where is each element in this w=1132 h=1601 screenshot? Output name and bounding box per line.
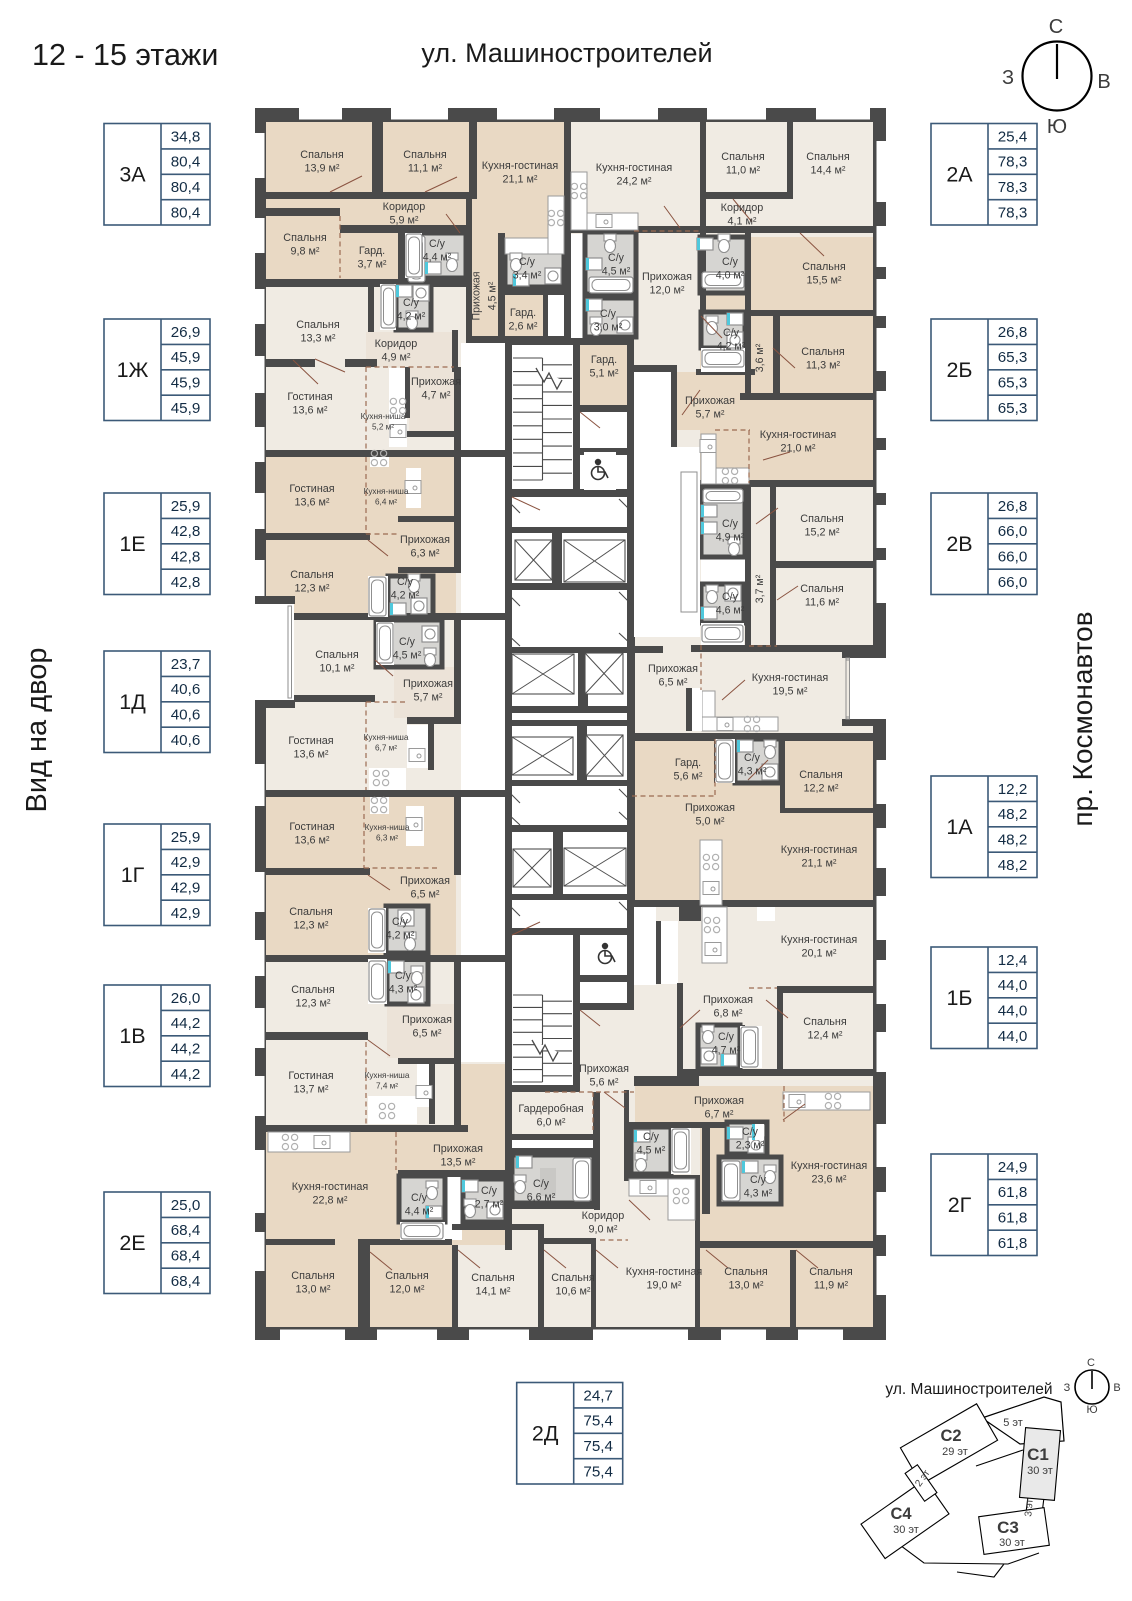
svg-text:1Е: 1Е: [119, 532, 145, 556]
svg-text:42,9: 42,9: [171, 854, 201, 871]
svg-text:66,0: 66,0: [998, 549, 1028, 566]
svg-text:4,3 м²: 4,3 м²: [744, 1187, 773, 1199]
svg-text:Коридор: Коридор: [383, 201, 426, 213]
svg-text:15,5 м²: 15,5 м²: [806, 275, 841, 287]
svg-text:Кухня-ниша: Кухня-ниша: [364, 487, 409, 496]
svg-text:4,7 м²: 4,7 м²: [712, 1044, 741, 1056]
svg-text:Гард.: Гард.: [675, 757, 701, 769]
svg-text:Ю: Ю: [1047, 116, 1067, 138]
svg-text:С/у: С/у: [392, 916, 409, 928]
svg-text:26,8: 26,8: [998, 324, 1028, 341]
svg-text:6,4 м²: 6,4 м²: [375, 497, 397, 506]
svg-text:30 эт: 30 эт: [1027, 1465, 1053, 1477]
svg-text:68,4: 68,4: [171, 1248, 201, 1265]
svg-text:42,9: 42,9: [171, 880, 201, 897]
svg-text:26,8: 26,8: [998, 498, 1028, 515]
svg-text:34,8: 34,8: [171, 128, 201, 145]
svg-text:С/у: С/у: [403, 297, 420, 309]
svg-text:2,6 м²: 2,6 м²: [508, 321, 537, 333]
svg-text:С/у: С/у: [643, 1131, 660, 1143]
svg-text:Спальня: Спальня: [315, 649, 359, 661]
svg-text:Кухня-ниша: Кухня-ниша: [361, 412, 406, 421]
svg-text:13,6 м²: 13,6 м²: [292, 405, 327, 417]
svg-text:4,4 м²: 4,4 м²: [423, 251, 452, 263]
svg-text:Спальня: Спальня: [803, 1016, 847, 1028]
svg-text:30 эт: 30 эт: [893, 1524, 919, 1536]
svg-text:3,6 м²: 3,6 м²: [754, 343, 766, 372]
svg-text:21,1 м²: 21,1 м²: [801, 858, 836, 870]
svg-text:Гостиная: Гостиная: [288, 1070, 333, 1082]
svg-text:1А: 1А: [946, 815, 973, 839]
svg-text:75,4: 75,4: [583, 1413, 613, 1430]
svg-text:Спальня: Спальня: [471, 1272, 515, 1284]
svg-text:Гостиная: Гостиная: [288, 735, 333, 747]
svg-text:2Б: 2Б: [946, 358, 972, 382]
svg-text:19,0 м²: 19,0 м²: [646, 1280, 681, 1292]
svg-text:14,4 м²: 14,4 м²: [810, 165, 845, 177]
svg-text:13,3 м²: 13,3 м²: [300, 333, 335, 345]
svg-text:5,7 м²: 5,7 м²: [413, 692, 442, 704]
svg-text:С/у: С/у: [519, 256, 536, 268]
svg-text:12,2 м²: 12,2 м²: [803, 783, 838, 795]
svg-text:30 эт: 30 эт: [999, 1537, 1025, 1549]
svg-text:65,3: 65,3: [998, 375, 1028, 392]
svg-text:Гард.: Гард.: [591, 354, 617, 366]
svg-text:Прихожая: Прихожая: [685, 802, 735, 814]
svg-text:С/у: С/у: [608, 252, 625, 264]
svg-text:Прихожая: Прихожая: [470, 271, 482, 320]
svg-text:12,3 м²: 12,3 м²: [295, 998, 330, 1010]
svg-text:15,2 м²: 15,2 м²: [804, 527, 839, 539]
svg-text:Спальня: Спальня: [724, 1266, 768, 1278]
svg-text:6,5 м²: 6,5 м²: [410, 889, 439, 901]
svg-text:75,4: 75,4: [583, 1464, 613, 1481]
svg-text:10,1 м²: 10,1 м²: [319, 663, 354, 675]
svg-text:25,9: 25,9: [171, 498, 201, 515]
svg-text:5,7 м²: 5,7 м²: [695, 409, 724, 421]
svg-text:6,8 м²: 6,8 м²: [713, 1008, 742, 1020]
svg-text:11,1 м²: 11,1 м²: [408, 163, 443, 175]
svg-text:2Е: 2Е: [119, 1231, 145, 1255]
svg-text:6,5 м²: 6,5 м²: [658, 677, 687, 689]
svg-text:5,1 м²: 5,1 м²: [589, 368, 618, 380]
svg-text:12,3 м²: 12,3 м²: [293, 920, 328, 932]
svg-text:4,2 м²: 4,2 м²: [391, 589, 420, 601]
svg-text:42,8: 42,8: [171, 574, 201, 591]
svg-text:61,8: 61,8: [998, 1184, 1028, 1201]
svg-text:3,4 м²: 3,4 м²: [513, 269, 542, 281]
svg-text:4,0 м²: 4,0 м²: [716, 269, 745, 281]
svg-text:48,2: 48,2: [998, 806, 1028, 823]
svg-text:4,7 м²: 4,7 м²: [421, 390, 450, 402]
svg-text:Спальня: Спальня: [385, 1270, 429, 1282]
svg-text:24,9: 24,9: [998, 1159, 1028, 1176]
svg-text:6,7 м²: 6,7 м²: [704, 1109, 733, 1121]
svg-text:80,4: 80,4: [171, 205, 201, 222]
svg-text:9,0 м²: 9,0 м²: [588, 1224, 617, 1236]
svg-text:21,1 м²: 21,1 м²: [502, 174, 537, 186]
svg-text:61,8: 61,8: [998, 1210, 1028, 1227]
svg-text:80,4: 80,4: [171, 179, 201, 196]
svg-text:78,3: 78,3: [998, 205, 1028, 222]
svg-text:1Б: 1Б: [946, 986, 972, 1010]
svg-text:3,0 м²: 3,0 м²: [594, 321, 623, 333]
svg-text:6,3 м²: 6,3 м²: [376, 833, 398, 842]
svg-text:Спальня: Спальня: [290, 569, 334, 581]
svg-text:19,5 м²: 19,5 м²: [772, 686, 807, 698]
svg-text:З: З: [1064, 1382, 1071, 1394]
svg-text:4,5 м²: 4,5 м²: [393, 649, 422, 661]
svg-text:Спальня: Спальня: [551, 1272, 595, 1284]
svg-text:13,5 м²: 13,5 м²: [440, 1157, 475, 1169]
svg-text:6,5 м²: 6,5 м²: [412, 1028, 441, 1040]
svg-text:С: С: [1087, 1357, 1095, 1369]
svg-text:Прихожая: Прихожая: [579, 1063, 629, 1075]
svg-text:22,8 м²: 22,8 м²: [312, 1195, 347, 1207]
svg-text:1Г: 1Г: [121, 863, 145, 887]
svg-text:7,4 м²: 7,4 м²: [376, 1081, 398, 1090]
svg-text:80,4: 80,4: [171, 154, 201, 171]
svg-text:Гардеробная: Гардеробная: [518, 1103, 583, 1115]
svg-text:2Д: 2Д: [532, 1422, 559, 1446]
svg-text:Ю: Ю: [1086, 1404, 1097, 1416]
svg-text:Спальня: Спальня: [289, 906, 333, 918]
svg-text:Гостиная: Гостиная: [289, 821, 334, 833]
svg-text:40,6: 40,6: [171, 707, 201, 724]
svg-text:13,0 м²: 13,0 м²: [295, 1284, 330, 1296]
svg-text:12,3 м²: 12,3 м²: [294, 583, 329, 595]
svg-text:1В: 1В: [119, 1024, 145, 1048]
svg-text:Кухня-гостиная: Кухня-гостиная: [781, 934, 858, 946]
svg-text:Гостиная: Гостиная: [287, 391, 332, 403]
svg-text:45,9: 45,9: [171, 400, 201, 417]
svg-text:2Г: 2Г: [948, 1193, 972, 1217]
svg-text:14,1 м²: 14,1 м²: [475, 1286, 510, 1298]
svg-text:В: В: [1113, 1382, 1120, 1394]
svg-text:10,6 м²: 10,6 м²: [555, 1286, 590, 1298]
svg-text:Гостиная: Гостиная: [289, 483, 334, 495]
svg-text:2,7 м²: 2,7 м²: [475, 1198, 504, 1210]
svg-text:С/у: С/у: [600, 308, 617, 320]
svg-text:Гард.: Гард.: [510, 307, 536, 319]
svg-text:13,6 м²: 13,6 м²: [293, 749, 328, 761]
svg-text:Спальня: Спальня: [283, 232, 327, 244]
svg-text:26,0: 26,0: [171, 990, 201, 1007]
svg-text:1Ж: 1Ж: [117, 358, 149, 382]
svg-text:С/у: С/у: [429, 238, 446, 250]
svg-text:45,9: 45,9: [171, 349, 201, 366]
svg-text:С/у: С/у: [723, 327, 740, 339]
svg-text:Спальня: Спальня: [300, 149, 344, 161]
svg-text:Спальня: Спальня: [806, 151, 850, 163]
svg-text:Кухня-гостиная: Кухня-гостиная: [626, 1266, 703, 1278]
svg-text:Спальня: Спальня: [801, 346, 845, 358]
svg-text:29 эт: 29 эт: [942, 1446, 968, 1458]
svg-text:6,7 м²: 6,7 м²: [375, 743, 397, 752]
svg-text:С/у: С/у: [481, 1185, 498, 1197]
svg-text:Кухня-гостиная: Кухня-гостиная: [752, 672, 829, 684]
svg-text:Кухня-гостиная: Кухня-гостиная: [781, 844, 858, 856]
svg-text:68,4: 68,4: [171, 1273, 201, 1290]
svg-text:3А: 3А: [119, 163, 146, 187]
svg-text:44,2: 44,2: [171, 1066, 201, 1083]
svg-text:1Д: 1Д: [119, 690, 146, 714]
svg-text:4,3 м²: 4,3 м²: [389, 983, 418, 995]
svg-text:6,3 м²: 6,3 м²: [410, 548, 439, 560]
svg-text:2В: 2В: [946, 532, 972, 556]
svg-text:С/у: С/у: [744, 752, 761, 764]
svg-text:Кухня-гостиная: Кухня-гостиная: [292, 1181, 369, 1193]
svg-text:3 эт: 3 эт: [1023, 1498, 1036, 1517]
svg-text:С/у: С/у: [750, 1174, 767, 1186]
svg-text:Прихожая: Прихожая: [400, 875, 450, 887]
svg-text:11,6 м²: 11,6 м²: [805, 597, 840, 609]
svg-text:40,6: 40,6: [171, 732, 201, 749]
svg-text:С: С: [1049, 16, 1063, 38]
svg-text:Коридор: Коридор: [375, 338, 418, 350]
svg-text:Спальня: Спальня: [721, 151, 765, 163]
svg-text:4,5 м²: 4,5 м²: [487, 281, 499, 310]
svg-text:Спальня: Спальня: [403, 149, 447, 161]
svg-text:21,0 м²: 21,0 м²: [780, 443, 815, 455]
svg-text:23,6 м²: 23,6 м²: [811, 1174, 846, 1186]
svg-text:С2: С2: [940, 1427, 961, 1445]
svg-text:5 эт: 5 эт: [1003, 1417, 1023, 1429]
svg-text:3,7 м²: 3,7 м²: [357, 259, 386, 271]
svg-text:Спальня: Спальня: [296, 319, 340, 331]
svg-text:С/у: С/у: [718, 1031, 735, 1043]
svg-text:2,3 м²: 2,3 м²: [736, 1139, 765, 1151]
svg-text:12,0 м²: 12,0 м²: [389, 1284, 424, 1296]
svg-text:66,0: 66,0: [998, 574, 1028, 591]
svg-text:С4: С4: [890, 1505, 912, 1523]
svg-text:44,0: 44,0: [998, 1003, 1028, 1020]
svg-text:4,2 м²: 4,2 м²: [717, 340, 746, 352]
svg-text:Кухня-ниша: Кухня-ниша: [365, 823, 410, 832]
svg-text:6,6 м²: 6,6 м²: [527, 1191, 556, 1203]
svg-text:Спальня: Спальня: [809, 1266, 853, 1278]
svg-text:4,2 м²: 4,2 м²: [397, 310, 426, 322]
svg-text:44,0: 44,0: [998, 1028, 1028, 1045]
svg-text:пр. Космонавтов: пр. Космонавтов: [1067, 611, 1098, 826]
svg-text:25,4: 25,4: [998, 128, 1028, 145]
svg-text:Кухня-гостиная: Кухня-гостиная: [482, 160, 559, 172]
svg-text:5,9 м²: 5,9 м²: [389, 215, 418, 227]
svg-text:13,7 м²: 13,7 м²: [293, 1084, 328, 1096]
svg-text:ул. Машиностроителей: ул. Машиностроителей: [421, 38, 712, 68]
svg-text:Кухня-ниша: Кухня-ниша: [364, 733, 409, 742]
svg-text:26,9: 26,9: [171, 324, 201, 341]
svg-text:11,0 м²: 11,0 м²: [726, 165, 761, 177]
svg-text:13,0 м²: 13,0 м²: [728, 1280, 763, 1292]
svg-text:Прихожая: Прихожая: [433, 1143, 483, 1155]
svg-text:75,4: 75,4: [583, 1438, 613, 1455]
svg-text:Прихожая: Прихожая: [685, 395, 735, 407]
svg-text:12,4: 12,4: [998, 952, 1028, 969]
svg-text:С/у: С/у: [395, 970, 412, 982]
svg-text:С1: С1: [1027, 1445, 1049, 1464]
svg-text:42,9: 42,9: [171, 905, 201, 922]
svg-text:4,1 м²: 4,1 м²: [727, 216, 756, 228]
svg-text:65,3: 65,3: [998, 400, 1028, 417]
svg-text:Прихожая: Прихожая: [402, 1014, 452, 1026]
svg-text:Спальня: Спальня: [800, 513, 844, 525]
svg-text:Кухня-гостиная: Кухня-гостиная: [791, 1160, 868, 1172]
svg-text:5,6 м²: 5,6 м²: [589, 1077, 618, 1089]
svg-text:С/у: С/у: [411, 1192, 428, 1204]
svg-text:4,5 м²: 4,5 м²: [602, 265, 631, 277]
svg-text:12 - 15 этажи: 12 - 15 этажи: [32, 38, 218, 72]
svg-text:4,6 м²: 4,6 м²: [716, 604, 745, 616]
svg-text:Прихожая: Прихожая: [703, 994, 753, 1006]
svg-text:Гард.: Гард.: [359, 245, 385, 257]
svg-text:44,2: 44,2: [171, 1041, 201, 1058]
svg-text:Спальня: Спальня: [800, 583, 844, 595]
svg-text:13,6 м²: 13,6 м²: [294, 497, 329, 509]
svg-text:78,3: 78,3: [998, 154, 1028, 171]
svg-text:12,2: 12,2: [998, 781, 1028, 798]
svg-text:4,4 м²: 4,4 м²: [405, 1205, 434, 1217]
svg-text:3,7 м²: 3,7 м²: [754, 574, 766, 603]
svg-text:2А: 2А: [946, 163, 973, 187]
svg-text:С/у: С/у: [722, 591, 739, 603]
svg-text:С/у: С/у: [722, 518, 739, 530]
svg-text:5,0 м²: 5,0 м²: [695, 816, 724, 828]
svg-text:42,8: 42,8: [171, 523, 201, 540]
svg-text:6,0 м²: 6,0 м²: [536, 1117, 565, 1129]
svg-text:5,6 м²: 5,6 м²: [673, 771, 702, 783]
svg-text:20,1 м²: 20,1 м²: [801, 948, 836, 960]
svg-text:23,7: 23,7: [171, 656, 201, 673]
svg-text:Кухня-гостиная: Кухня-гостиная: [760, 429, 837, 441]
svg-text:5,2 м²: 5,2 м²: [372, 422, 394, 431]
svg-text:Кухня-ниша: Кухня-ниша: [365, 1071, 410, 1080]
svg-text:44,0: 44,0: [998, 977, 1028, 994]
svg-text:Спальня: Спальня: [799, 769, 843, 781]
svg-text:61,8: 61,8: [998, 1235, 1028, 1252]
svg-text:С3: С3: [997, 1518, 1019, 1537]
svg-text:4,3 м²: 4,3 м²: [738, 765, 767, 777]
svg-text:С/у: С/у: [533, 1178, 550, 1190]
svg-text:Прихожая: Прихожая: [403, 678, 453, 690]
svg-text:Прихожая: Прихожая: [400, 534, 450, 546]
svg-text:Кухня-гостиная: Кухня-гостиная: [596, 162, 673, 174]
svg-text:13,6 м²: 13,6 м²: [294, 835, 329, 847]
svg-text:13,9 м²: 13,9 м²: [304, 163, 339, 175]
svg-text:С/у: С/у: [722, 256, 739, 268]
svg-text:С/у: С/у: [742, 1126, 759, 1138]
svg-text:С/у: С/у: [397, 576, 414, 588]
svg-text:Прихожая: Прихожая: [642, 271, 692, 283]
svg-text:Вид на двор: Вид на двор: [21, 648, 53, 813]
svg-text:65,3: 65,3: [998, 349, 1028, 366]
svg-text:78,3: 78,3: [998, 179, 1028, 196]
svg-text:Прихожая: Прихожая: [648, 663, 698, 675]
svg-text:48,2: 48,2: [998, 832, 1028, 849]
svg-text:12,0 м²: 12,0 м²: [649, 285, 684, 297]
svg-text:С/у: С/у: [399, 636, 416, 648]
svg-text:48,2: 48,2: [998, 857, 1028, 874]
svg-text:ул. Машиностроителей: ул. Машиностроителей: [885, 1381, 1052, 1398]
svg-text:4,2 м²: 4,2 м²: [386, 929, 415, 941]
svg-text:4,5 м²: 4,5 м²: [637, 1144, 666, 1156]
svg-text:24,7: 24,7: [583, 1387, 613, 1404]
svg-text:25,9: 25,9: [171, 829, 201, 846]
svg-text:Прихожая: Прихожая: [411, 376, 461, 388]
svg-text:12,4 м²: 12,4 м²: [807, 1030, 842, 1042]
svg-text:4,9 м²: 4,9 м²: [381, 352, 410, 364]
svg-text:4,9 м²: 4,9 м²: [716, 531, 745, 543]
svg-text:Спальня: Спальня: [802, 261, 846, 273]
svg-text:24,2 м²: 24,2 м²: [616, 176, 651, 188]
svg-text:Коридор: Коридор: [582, 1210, 625, 1222]
svg-text:9,8 м²: 9,8 м²: [290, 246, 319, 258]
svg-text:З: З: [1002, 67, 1014, 89]
svg-text:Спальня: Спальня: [291, 1270, 335, 1282]
svg-text:42,8: 42,8: [171, 549, 201, 566]
svg-text:68,4: 68,4: [171, 1222, 201, 1239]
svg-text:11,9 м²: 11,9 м²: [814, 1280, 849, 1292]
svg-text:Коридор: Коридор: [721, 202, 764, 214]
svg-text:В: В: [1097, 71, 1110, 93]
svg-text:45,9: 45,9: [171, 375, 201, 392]
svg-text:44,2: 44,2: [171, 1015, 201, 1032]
svg-text:40,6: 40,6: [171, 681, 201, 698]
svg-text:11,3 м²: 11,3 м²: [806, 360, 841, 372]
svg-text:Прихожая: Прихожая: [694, 1095, 744, 1107]
svg-text:25,0: 25,0: [171, 1197, 201, 1214]
svg-text:66,0: 66,0: [998, 523, 1028, 540]
svg-text:Спальня: Спальня: [291, 984, 335, 996]
